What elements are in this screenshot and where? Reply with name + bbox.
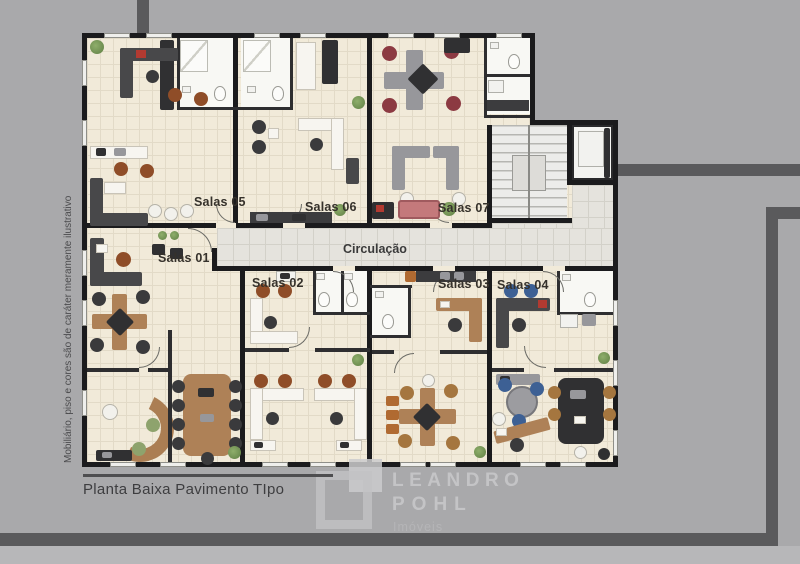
door-opening [543, 266, 565, 271]
desk [496, 298, 509, 348]
window [262, 462, 288, 467]
chair [492, 412, 506, 426]
partition-wall [492, 368, 524, 372]
door-opening [333, 266, 355, 271]
disclaimer-note: Mobiliário, piso e cores são de caráter … [63, 207, 77, 463]
wall [567, 180, 613, 185]
door-opening [216, 223, 236, 228]
chair [229, 418, 242, 431]
paper [496, 428, 507, 436]
room-label-salas-02: Salas 02 [252, 276, 304, 290]
desk [90, 272, 142, 286]
accent [376, 205, 384, 212]
partition-wall [290, 38, 293, 110]
chair [382, 46, 397, 61]
chair [400, 386, 414, 400]
tray [114, 148, 126, 156]
window [400, 462, 426, 467]
background-notch [535, 33, 618, 120]
window [613, 300, 618, 326]
toilet [382, 314, 394, 329]
floor-plan-poster: Salas 05 Salas 06 Salas 07 Salas 01 Sala… [0, 0, 800, 564]
sink [375, 291, 384, 298]
counter [487, 100, 529, 111]
logo-surname: POHL [392, 494, 473, 516]
window [388, 33, 414, 38]
toilet [346, 292, 358, 307]
meeting-table [558, 378, 604, 444]
wall [367, 271, 372, 462]
chair [136, 290, 150, 304]
window [613, 360, 618, 386]
window [82, 250, 87, 276]
chair [446, 96, 461, 111]
wall [487, 218, 572, 223]
chair [140, 164, 154, 178]
box [405, 271, 416, 282]
chair [146, 418, 160, 432]
chair [382, 98, 397, 113]
room-label-salas-05: Salas 05 [194, 195, 246, 209]
partition-wall [177, 107, 293, 110]
elevator-mech [604, 128, 610, 178]
desk [469, 298, 482, 342]
chair [172, 380, 185, 393]
toilet [214, 86, 226, 101]
printer [340, 442, 349, 448]
printer [254, 442, 263, 448]
chair [252, 120, 266, 134]
caption-rule [83, 474, 333, 477]
chair [172, 437, 185, 450]
appliance [256, 214, 268, 221]
window [110, 462, 136, 467]
sofa [322, 40, 338, 84]
window [82, 300, 87, 326]
window [300, 33, 326, 38]
staircase [492, 125, 567, 218]
chair [266, 412, 279, 425]
tray [102, 452, 112, 458]
paper [440, 301, 450, 308]
chair [512, 318, 526, 332]
table [268, 128, 279, 139]
window [310, 462, 336, 467]
desk [392, 146, 430, 158]
shower [180, 40, 208, 72]
room-label-salas-04: Salas 04 [497, 278, 549, 292]
window [496, 33, 522, 38]
desk [331, 118, 344, 170]
wall [487, 271, 492, 462]
wall [240, 271, 245, 462]
chair [168, 88, 182, 102]
partition-wall [372, 350, 394, 354]
chair [574, 446, 587, 459]
stair-rail [528, 125, 530, 218]
window [146, 33, 172, 38]
partition-wall [408, 285, 411, 338]
wall [530, 120, 618, 125]
room-label-salas-03: Salas 03 [438, 277, 490, 291]
chair [446, 436, 460, 450]
chair [194, 92, 208, 106]
stool [180, 204, 194, 218]
chair [136, 340, 150, 354]
logo-mark-outer-square [316, 471, 372, 529]
plan-caption: Planta Baixa Pavimento TIpo [83, 481, 284, 498]
chair [342, 374, 356, 388]
plant [598, 352, 610, 364]
wall [567, 125, 572, 185]
desk [433, 146, 459, 158]
chair [90, 338, 104, 352]
window [82, 120, 87, 146]
tray [570, 390, 586, 399]
logo-name: LEANDRO [392, 470, 524, 492]
chair [530, 382, 544, 396]
chair [310, 138, 323, 151]
stair-hall-floor [572, 185, 613, 228]
chair [548, 386, 561, 399]
plant [352, 354, 364, 366]
partition-wall [484, 74, 530, 77]
chair [398, 434, 412, 448]
plant [170, 231, 179, 240]
logo-tagline: Imóveis [393, 520, 443, 534]
wall [367, 38, 372, 223]
shower [243, 40, 271, 72]
chair [229, 399, 242, 412]
elevator-car [578, 131, 604, 167]
partition-wall [370, 335, 411, 338]
paper [96, 244, 108, 253]
partition-wall [440, 350, 487, 354]
desk [104, 182, 126, 194]
accent [136, 50, 146, 58]
toilet [584, 292, 596, 307]
seat [386, 410, 399, 420]
desk [90, 213, 148, 226]
partition-wall [315, 348, 370, 352]
appliance [560, 314, 578, 328]
appliance [488, 80, 504, 93]
cabinet [296, 42, 316, 90]
seat [386, 424, 399, 434]
paper [574, 416, 586, 424]
wall [530, 33, 535, 125]
partition-wall [554, 368, 613, 372]
room-label-salas-01: Salas 01 [158, 251, 210, 265]
chair [254, 374, 268, 388]
desk [354, 388, 367, 440]
chair [172, 418, 185, 431]
window [160, 462, 186, 467]
desk [250, 331, 298, 344]
chair [603, 408, 616, 421]
room-label-salas-06: Salas 06 [305, 200, 357, 214]
desk [120, 48, 133, 98]
chair [444, 384, 458, 398]
window [520, 462, 546, 467]
printer [96, 148, 106, 156]
chair [92, 292, 106, 306]
chair [102, 404, 118, 420]
toilet [508, 54, 520, 69]
door-opening [430, 223, 452, 228]
chair [448, 318, 462, 332]
cabinet [346, 158, 359, 184]
window [613, 430, 618, 456]
toilet [272, 86, 284, 101]
chair [422, 374, 435, 387]
window [82, 390, 87, 416]
box [582, 314, 596, 326]
window [104, 33, 130, 38]
chair [132, 442, 146, 456]
chair [548, 408, 561, 421]
plant [474, 446, 486, 458]
chair [498, 378, 512, 392]
partition-wall [87, 368, 139, 372]
cabinet [444, 38, 470, 53]
window [82, 60, 87, 86]
room-label-salas-07: Salas 07 [438, 201, 490, 215]
sink [490, 42, 499, 49]
pouf [598, 448, 610, 460]
partition-wall [148, 368, 170, 372]
plant [352, 96, 365, 109]
partition-wall [245, 348, 289, 352]
chair [229, 380, 242, 393]
partition-wall [313, 312, 370, 315]
seat [386, 396, 399, 406]
chair [114, 162, 128, 176]
tray [200, 414, 214, 422]
partition-wall [370, 285, 412, 288]
plant [158, 231, 167, 240]
sofa [398, 200, 440, 219]
chair [603, 386, 616, 399]
partition-wall [484, 115, 530, 118]
chair [510, 438, 524, 452]
corridor-label: Circulação [330, 242, 420, 256]
sink [247, 86, 256, 93]
stool [148, 204, 162, 218]
sink [316, 273, 325, 280]
stool [164, 207, 178, 221]
sink [182, 86, 191, 93]
chair [146, 70, 159, 83]
chair [252, 140, 266, 154]
tray [198, 388, 214, 397]
door-opening [283, 223, 305, 228]
sink [562, 274, 571, 281]
appliance [292, 214, 306, 221]
chair [318, 374, 332, 388]
sink [344, 273, 353, 280]
accent [538, 300, 547, 308]
window [560, 462, 586, 467]
chair [201, 452, 214, 465]
chair [278, 374, 292, 388]
chair [264, 316, 277, 329]
plant [90, 40, 104, 54]
chair [330, 412, 343, 425]
window [430, 462, 456, 467]
desk [250, 388, 263, 440]
chair [116, 252, 131, 267]
toilet [318, 292, 330, 307]
chair [172, 399, 185, 412]
window [254, 33, 280, 38]
plant [228, 446, 241, 459]
